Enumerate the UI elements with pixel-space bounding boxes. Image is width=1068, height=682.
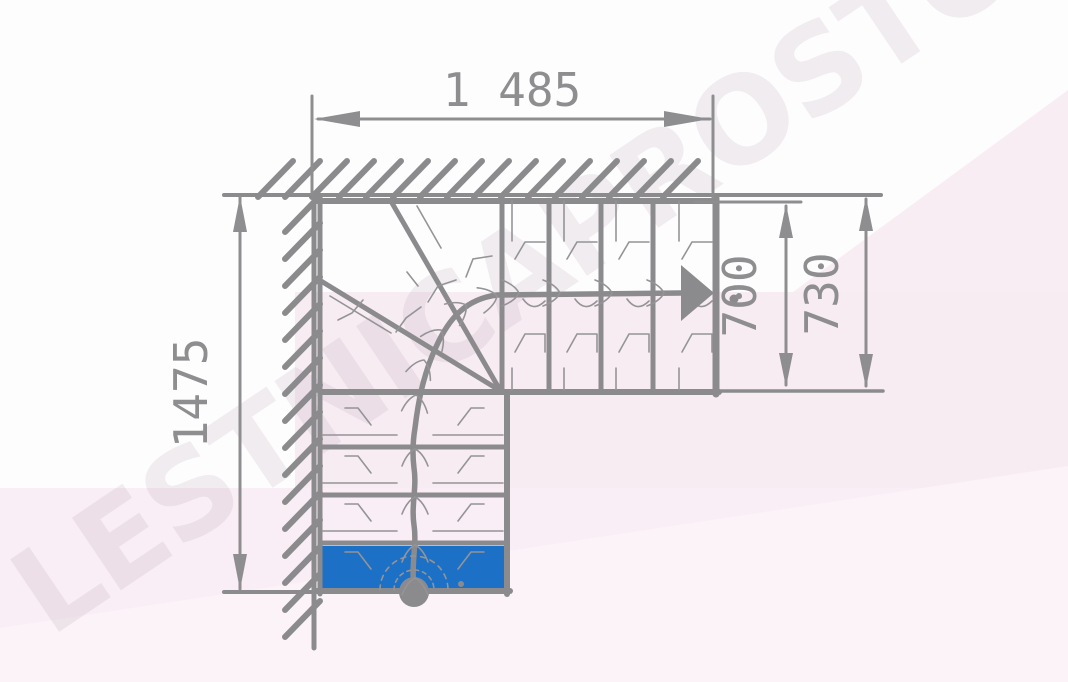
- dim-label-top-width: 1 485: [443, 63, 581, 117]
- dim-label-left-height: 1475: [164, 338, 218, 449]
- staircase-plan-drawing: LESTNICAPROSTO.RU: [0, 0, 1068, 682]
- dim-label-flight-outer: 730: [795, 252, 849, 335]
- dim-label-flight-inner: 700: [713, 254, 767, 337]
